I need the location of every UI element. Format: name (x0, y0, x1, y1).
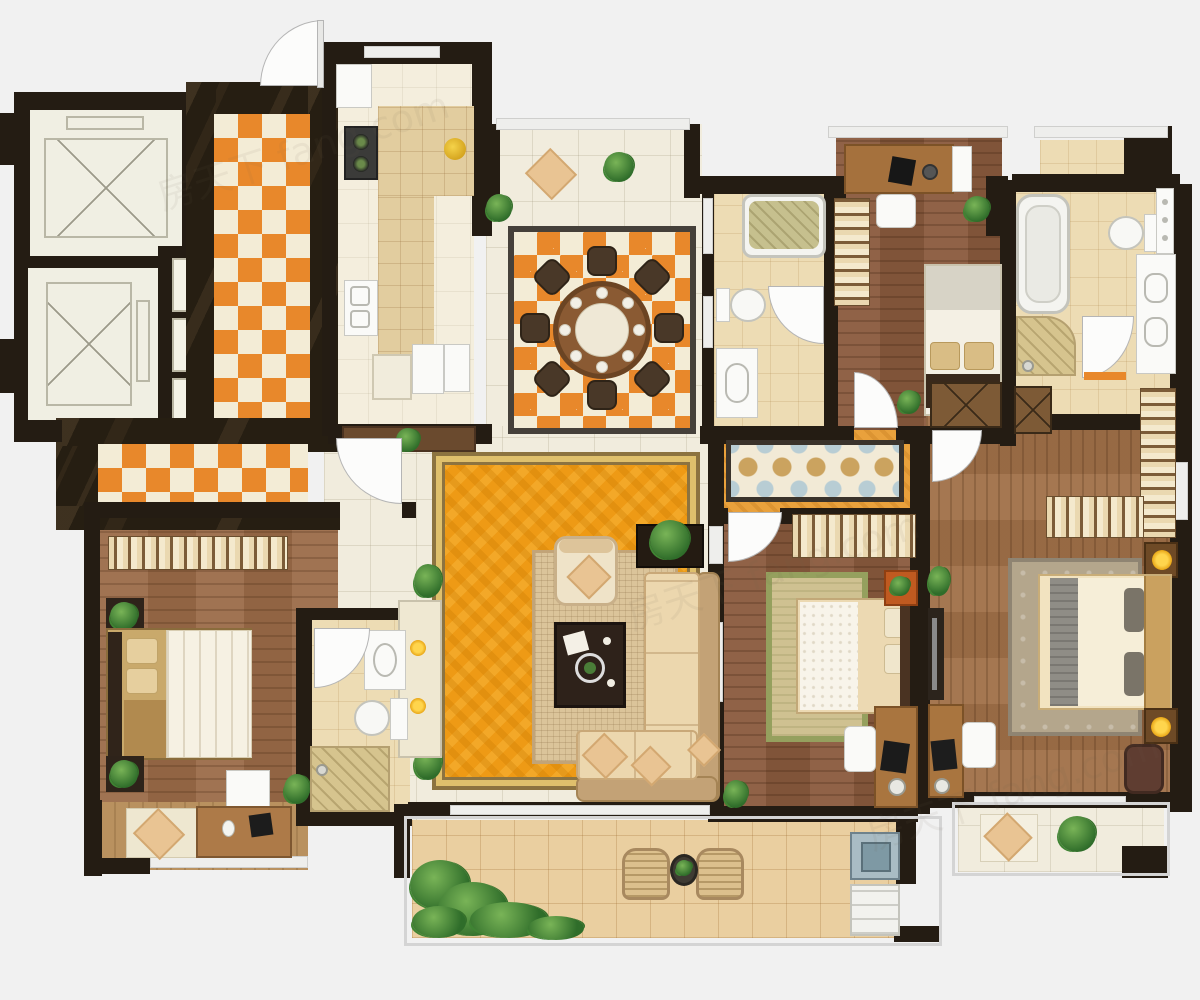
wall (0, 113, 14, 165)
wall (84, 516, 100, 826)
tub-interior (1025, 205, 1061, 303)
dining-bay-frame (496, 118, 690, 130)
place-setting (596, 287, 608, 299)
armchair (554, 536, 618, 606)
washer-door (861, 842, 891, 872)
elevator-1-door-slot (66, 116, 144, 130)
shower-head-icon (316, 764, 328, 776)
tv-cabinet-plant-icon (650, 520, 690, 560)
pillow (1124, 652, 1144, 696)
laptop-icon (880, 740, 910, 773)
bedroom-3-plant-icon (724, 780, 748, 808)
kitchen-appliance (444, 344, 470, 392)
lower-hall-diamond-floor (98, 444, 308, 508)
burner (353, 134, 369, 150)
pillow (964, 342, 994, 370)
pillow (126, 638, 158, 664)
console-lamp-icon (410, 698, 426, 714)
bedroom-2-wardrobe (834, 198, 870, 306)
bathroom-3-window (1156, 188, 1174, 254)
dining-chair (654, 313, 684, 343)
double-vanity (1136, 254, 1176, 374)
wicker-chair (696, 848, 744, 900)
master-plant-icon (928, 566, 950, 596)
bathroom-2-vanity (716, 348, 758, 418)
headboard (900, 600, 910, 712)
balcony-sliding-door (450, 805, 710, 815)
master-wardrobe (1140, 388, 1176, 538)
wall (14, 420, 62, 442)
toilet (1108, 216, 1144, 250)
headboard (1144, 576, 1170, 708)
place-setting (570, 297, 582, 309)
elevator-2-handle (136, 300, 150, 382)
wall (296, 608, 412, 620)
pillow (1124, 588, 1144, 632)
monitor-icon (888, 156, 916, 186)
master-wardrobe (1046, 496, 1144, 538)
master-armchair (1124, 744, 1164, 794)
pillow (930, 342, 960, 370)
tv-console (928, 608, 944, 700)
living-plant-icon (414, 564, 442, 598)
window-dot (1162, 217, 1168, 223)
mattress (800, 602, 858, 710)
throw (124, 700, 166, 758)
wall (402, 502, 416, 518)
window-dot (1162, 235, 1168, 241)
tub-interior (749, 201, 819, 249)
desk-chair (962, 722, 996, 768)
entry-door-leaf (317, 20, 324, 88)
coffee-table (554, 622, 626, 708)
lamp-icon (1151, 717, 1171, 737)
nightstand-plant-icon (890, 576, 910, 596)
bedroom-1-plant-icon (284, 774, 310, 804)
toilet (354, 700, 390, 736)
window-dot (1162, 199, 1168, 205)
wall (700, 176, 840, 194)
dining-chair (520, 313, 550, 343)
console-lamp-icon (410, 640, 426, 656)
basin (1144, 273, 1168, 303)
balcony-shrub-icon (528, 916, 584, 940)
desk-disc (922, 164, 938, 180)
shower-area (310, 746, 390, 812)
wall (684, 124, 700, 198)
sink-basin (350, 310, 370, 328)
sink-basin (350, 286, 370, 306)
lamp-icon (1152, 550, 1172, 570)
kitchen-window (364, 46, 440, 58)
washing-machine (850, 832, 900, 880)
desk-chair (844, 726, 876, 772)
bathtub (742, 194, 826, 258)
desk-knob (888, 778, 906, 796)
x-front-cabinet (1014, 386, 1052, 434)
bathroom-2-window (703, 296, 713, 348)
entry-marble-wall (186, 82, 216, 440)
entry-hall-diamond-floor (214, 114, 310, 420)
cooktop (344, 126, 378, 180)
bedroom-3-bed (796, 598, 908, 714)
elevator-2-car-icon (46, 282, 132, 406)
cup (607, 679, 615, 687)
tray-plant-icon (584, 662, 596, 674)
basin (373, 643, 397, 677)
wall (322, 62, 336, 436)
floor-plan: 房天下 fang.com 房天下 fang.com 房天下 fang.com (0, 0, 1200, 1000)
entry-door-arc (260, 20, 324, 86)
toilet-tank (716, 288, 730, 322)
laptop-icon (930, 739, 957, 771)
bedroom-3-wardrobe (792, 514, 916, 558)
bay-plant-icon (1058, 816, 1096, 852)
pillow (126, 668, 158, 694)
x-front-cabinet (930, 382, 1002, 428)
place-setting (559, 324, 571, 336)
bathroom-2-window (703, 198, 713, 254)
nightstand-plant-icon (110, 602, 138, 630)
balcony-shrub-icon (412, 906, 466, 938)
kitchen-cart (372, 354, 412, 400)
bedroom-1-wardrobe (108, 536, 288, 570)
bedroom-2-bay-frame (828, 126, 1008, 138)
place-setting (570, 350, 582, 362)
place-setting (622, 297, 634, 309)
burner (353, 156, 369, 172)
master-bed (1038, 574, 1172, 710)
cup (603, 637, 611, 645)
place-setting (622, 350, 634, 362)
bathroom-3-bay-frame (1034, 126, 1168, 138)
elevator-1-car-icon (44, 138, 168, 238)
kitchen-sink (344, 280, 378, 336)
dining-plant-icon (486, 194, 512, 222)
bay-plant-icon (604, 152, 634, 182)
nightstand-plant-icon (110, 760, 138, 788)
wall (84, 502, 340, 518)
shower-head-icon (1022, 360, 1034, 372)
master-window (1174, 462, 1188, 520)
bed-runner (1050, 578, 1078, 706)
sheet (926, 266, 1000, 310)
bedroom-1-bed (106, 628, 252, 760)
dryer (850, 884, 900, 936)
place-setting (633, 324, 645, 336)
fridge (336, 64, 372, 108)
bay-side-table (952, 146, 972, 192)
balcony-desk (196, 806, 292, 858)
kitchen-appliance (412, 344, 444, 394)
wall (0, 339, 14, 393)
bedroom-2-plant-icon (964, 196, 990, 222)
armchair-back (559, 539, 613, 553)
dining-chair (587, 380, 617, 410)
desk-knob (934, 778, 950, 794)
toilet-tank (390, 698, 408, 740)
wall (482, 124, 500, 198)
desk-chair (876, 194, 916, 228)
bathroom-1-vanity (364, 630, 406, 690)
dining-table-center (575, 303, 629, 357)
laptop-icon (249, 813, 274, 838)
napkin (563, 630, 589, 655)
wall (84, 858, 150, 874)
master-bathtub (1016, 194, 1070, 314)
fruit-bowl (444, 138, 466, 160)
basin (1144, 317, 1168, 347)
duvet (166, 630, 252, 758)
mouse-icon (222, 820, 235, 837)
table-plant-icon (676, 860, 692, 876)
hallway-mosaic-runner (726, 440, 904, 502)
armchair-cushion (566, 554, 611, 599)
toilet (730, 288, 766, 322)
wicker-chair (622, 848, 670, 900)
bedroom-2-plant-icon (898, 390, 920, 414)
bathroom-3-threshold (1084, 372, 1126, 380)
place-setting (596, 361, 608, 373)
dining-chair (587, 246, 617, 276)
basin (725, 363, 749, 403)
bedroom-3-window (709, 526, 723, 564)
headboard (108, 632, 122, 756)
tv-screen-icon (932, 618, 937, 690)
